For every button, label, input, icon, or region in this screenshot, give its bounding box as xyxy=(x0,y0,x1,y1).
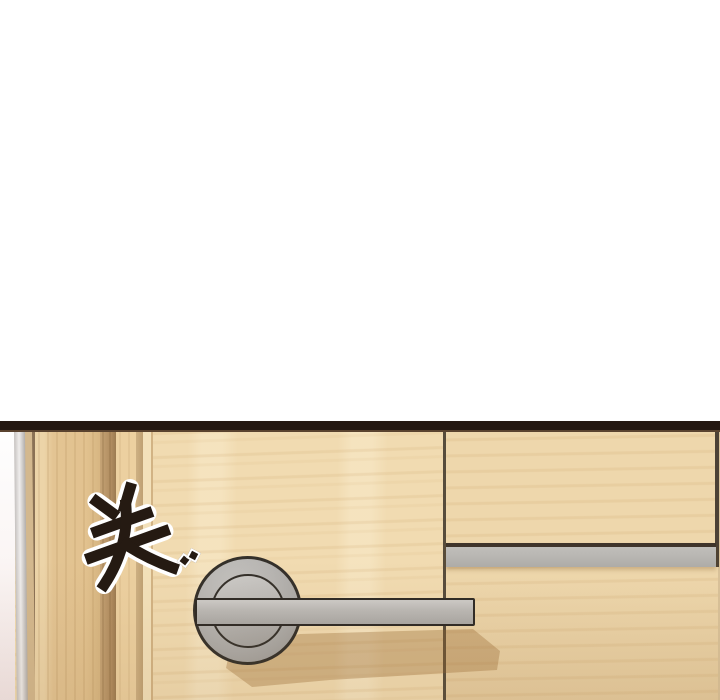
comic-panel: 关 xyxy=(0,0,720,700)
panel-top-whitespace xyxy=(0,0,720,421)
panel-border-bar xyxy=(0,421,720,432)
